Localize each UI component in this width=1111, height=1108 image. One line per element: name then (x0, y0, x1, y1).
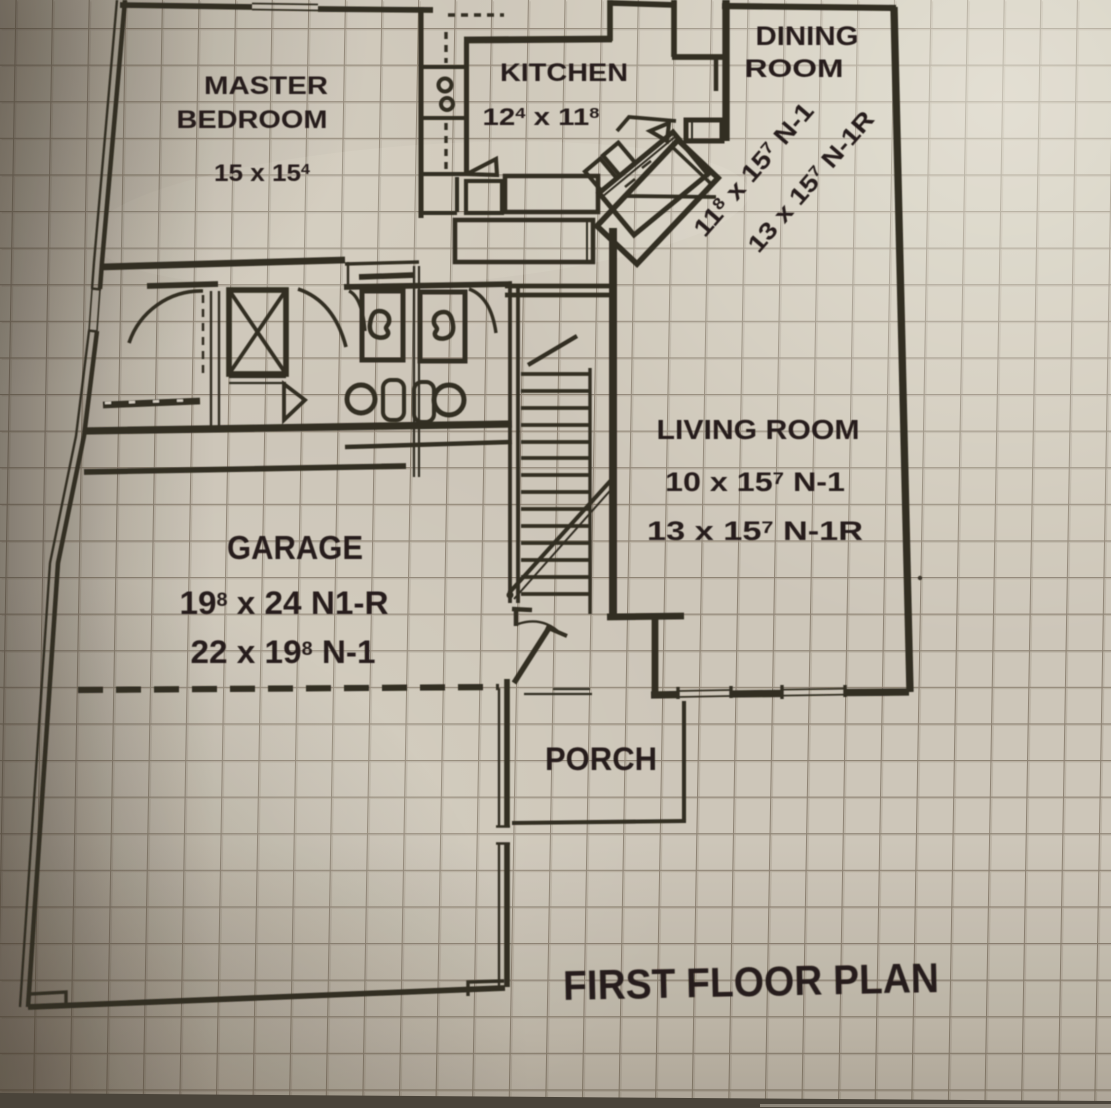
svg-text:GARAGE: GARAGE (227, 529, 363, 566)
svg-text:PORCH: PORCH (545, 741, 657, 777)
svg-text:BEDROOM: BEDROOM (177, 106, 328, 134)
svg-text:13 x 157 N-1R: 13 x 157 N-1R (647, 516, 863, 546)
svg-text:MASTER: MASTER (204, 72, 328, 100)
svg-text:ROOM: ROOM (745, 55, 844, 83)
svg-text:DINING: DINING (756, 21, 859, 51)
svg-text:124 x 118: 124 x 118 (483, 104, 600, 131)
svg-text:FIRST FLOOR PLAN: FIRST FLOOR PLAN (563, 954, 940, 1009)
svg-text:198 x 24 N1-R: 198 x 24 N1-R (180, 585, 389, 621)
svg-text:22 x 198 N-1: 22 x 198 N-1 (191, 634, 376, 670)
svg-text:KITCHEN: KITCHEN (500, 59, 628, 87)
svg-text:10 x 157 N-1: 10 x 157 N-1 (665, 467, 845, 497)
svg-text:LIVING ROOM: LIVING ROOM (657, 414, 860, 445)
svg-text:15 x 154: 15 x 154 (214, 160, 311, 187)
